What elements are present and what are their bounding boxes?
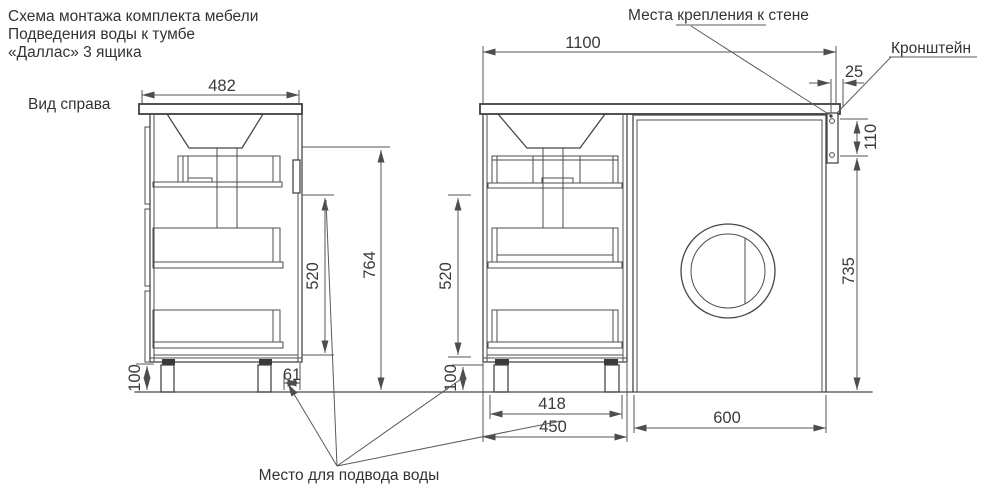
bracket-callout: Кронштейн — [891, 40, 971, 57]
dim-520-side: 520 — [304, 262, 322, 290]
side-drawer-front-2 — [145, 209, 150, 286]
side-countertop — [139, 104, 302, 114]
side-wall-bracket — [293, 160, 300, 193]
dim-25: 25 — [845, 63, 863, 81]
side-view-drawing — [139, 104, 302, 392]
wall-bracket — [827, 113, 838, 163]
washer-door-inner — [691, 234, 765, 308]
front-foot-pad-left — [495, 359, 509, 365]
dim-450: 450 — [539, 418, 567, 436]
side-leg-right — [258, 365, 271, 392]
dim-735: 735 — [840, 257, 858, 285]
dim-100-side: 100 — [126, 364, 144, 392]
side-drawer-front-1 — [145, 127, 150, 204]
wall-mount-callout: Места крепления к стене — [628, 7, 809, 24]
title-line-1: Схема монтажа комплекта мебели — [8, 8, 258, 25]
side-drawer-box-3 — [153, 310, 280, 342]
front-leg-right — [605, 365, 619, 392]
dim-110: 110 — [862, 124, 880, 150]
dim-764: 764 — [361, 251, 379, 279]
front-view-drawing — [480, 104, 840, 392]
dim-418: 418 — [538, 395, 566, 413]
side-drawer-front-3 — [145, 291, 150, 362]
dim-100-front: 100 — [442, 364, 460, 392]
dim-520-front: 520 — [437, 262, 455, 290]
side-foot-pad-left — [162, 359, 175, 365]
dim-600: 600 — [713, 409, 741, 427]
washing-machine — [633, 115, 826, 392]
front-foot-pad-right — [604, 359, 618, 365]
washer-door-outer — [681, 224, 775, 318]
title-line-3: «Даллас» 3 ящика — [8, 44, 142, 61]
furniture-assembly-diagram: 482 764 520 100 61 1100 25 110 — [0, 0, 1000, 494]
dim-482: 482 — [208, 77, 236, 95]
diagram-canvas: 482 764 520 100 61 1100 25 110 — [0, 0, 1000, 494]
front-cabinet-body — [483, 114, 627, 362]
side-drawer-box-2 — [153, 228, 280, 262]
side-foot-pad-right — [259, 359, 272, 365]
side-view-label: Вид справа — [28, 96, 111, 113]
bracket-plate — [827, 113, 838, 163]
dim-61: 61 — [283, 366, 301, 384]
front-drawer-box-3 — [492, 310, 618, 342]
side-cabinet-body — [150, 114, 302, 362]
dimensions: 482 764 520 100 61 1100 25 110 — [126, 34, 880, 442]
side-leg-left — [161, 365, 174, 392]
side-sink-bowl — [167, 114, 263, 148]
front-drawer-box-2 — [492, 228, 618, 262]
title-line-2: Подведения воды к тумбе — [8, 26, 195, 43]
dim-1100: 1100 — [565, 34, 600, 52]
water-supply-callout: Место для подвода воды — [259, 467, 440, 484]
front-countertop — [480, 104, 840, 114]
front-leg-left — [494, 365, 508, 392]
front-sink-bowl — [498, 114, 605, 148]
